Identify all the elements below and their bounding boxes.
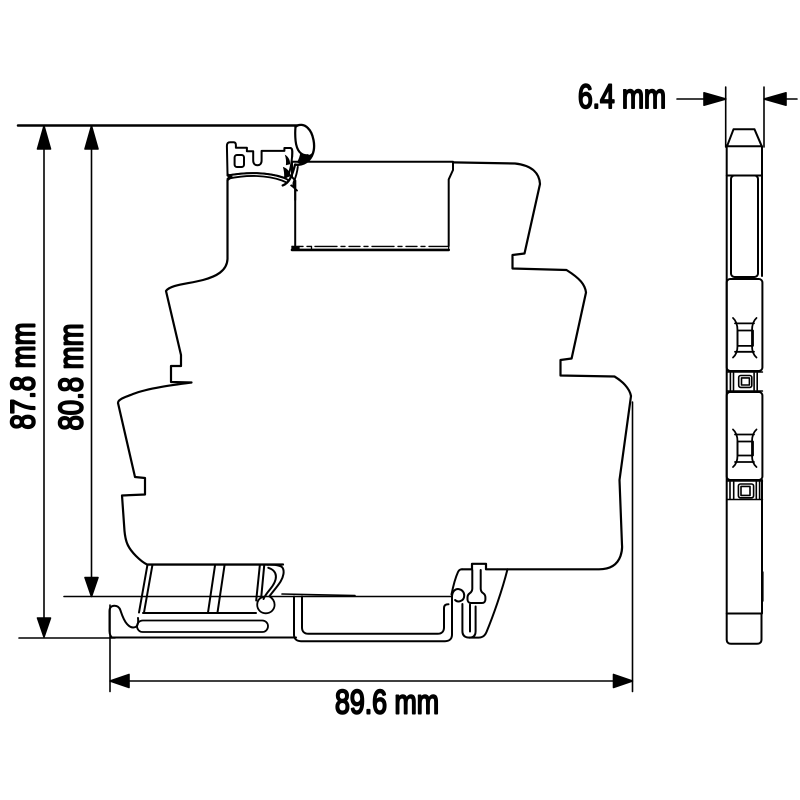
svg-text:87.8 mm: 87.8 mm	[5, 323, 43, 430]
svg-text:6.4 mm: 6.4 mm	[578, 78, 666, 116]
svg-text:80.8 mm: 80.8 mm	[53, 324, 91, 431]
svg-text:89.6 mm: 89.6 mm	[335, 684, 439, 722]
